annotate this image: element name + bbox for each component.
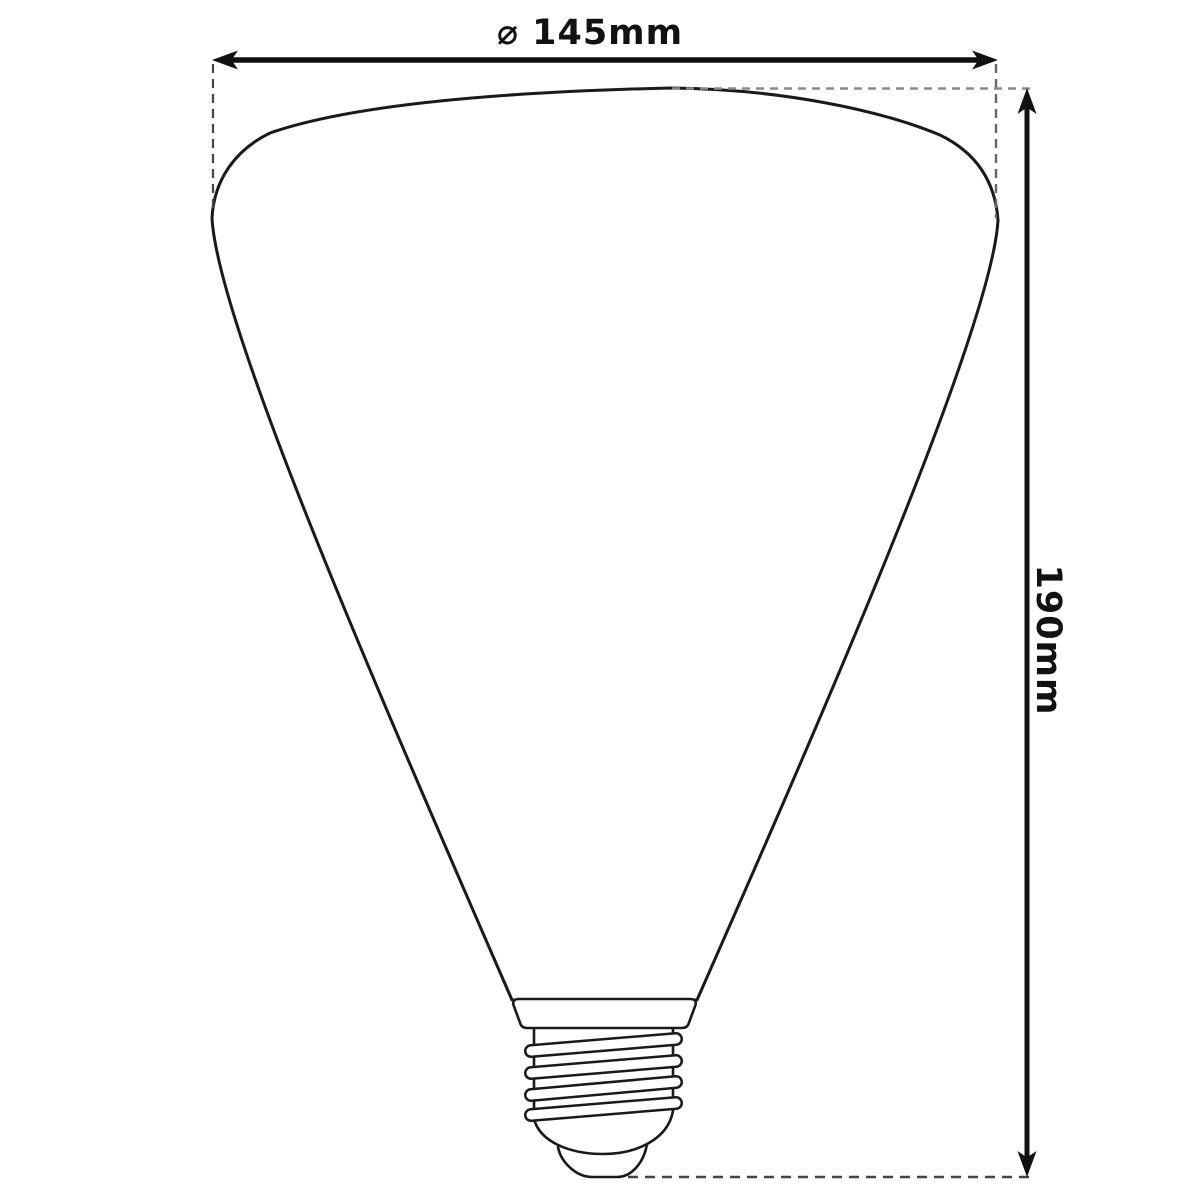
bulb-dimension-diagram: ⌀ 145mm 190mm xyxy=(0,0,1200,1200)
width-dimension-label: ⌀ 145mm xyxy=(497,13,683,53)
diagram-canvas xyxy=(0,0,1200,1200)
bulb-collar xyxy=(513,999,696,1028)
height-dimension-label: 190mm xyxy=(1026,560,1070,720)
bulb-outline xyxy=(212,88,998,1000)
